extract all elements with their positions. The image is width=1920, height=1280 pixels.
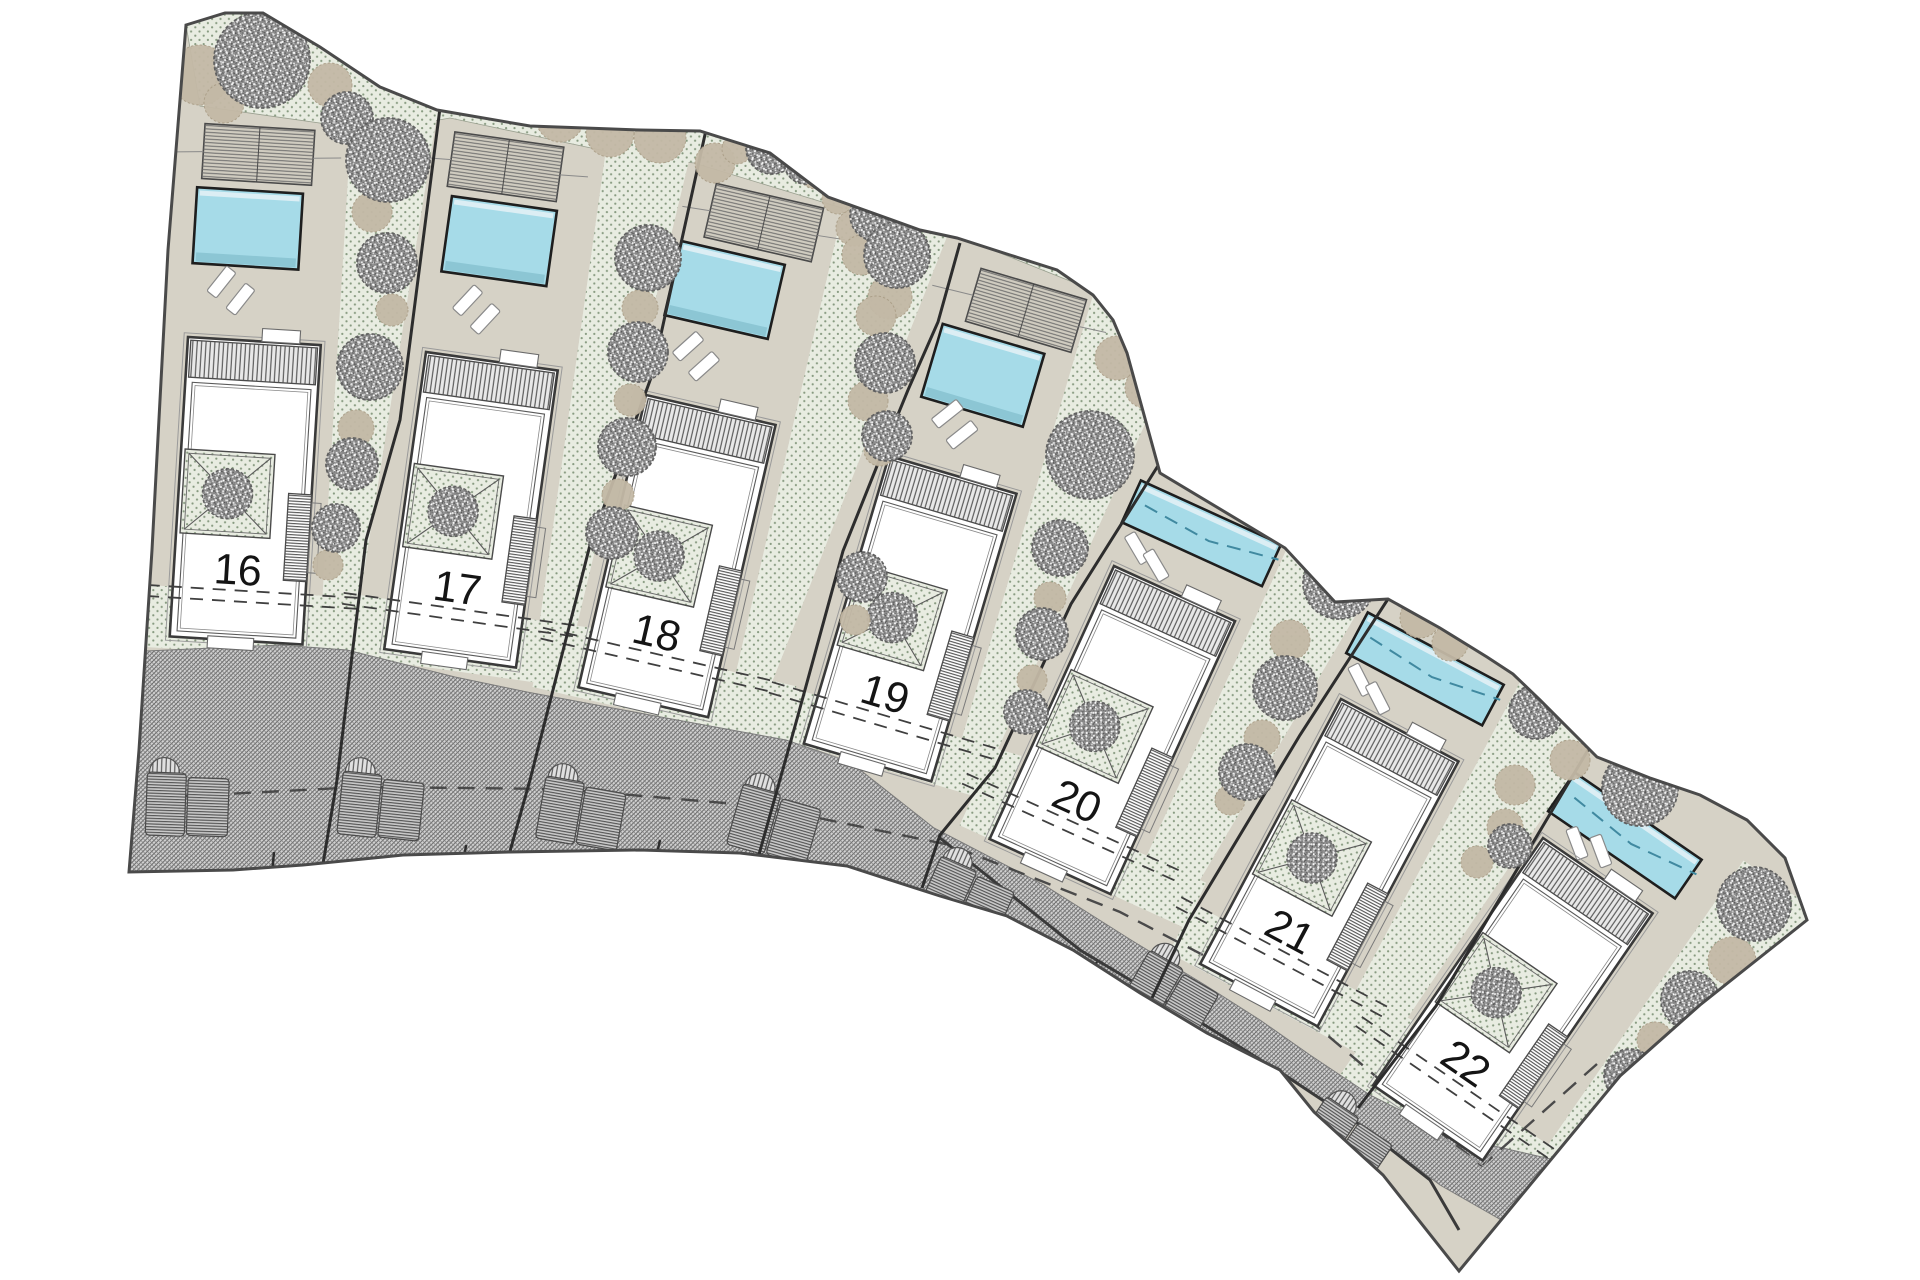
svg-text:16: 16 bbox=[212, 545, 263, 596]
svg-text:17: 17 bbox=[430, 562, 484, 616]
